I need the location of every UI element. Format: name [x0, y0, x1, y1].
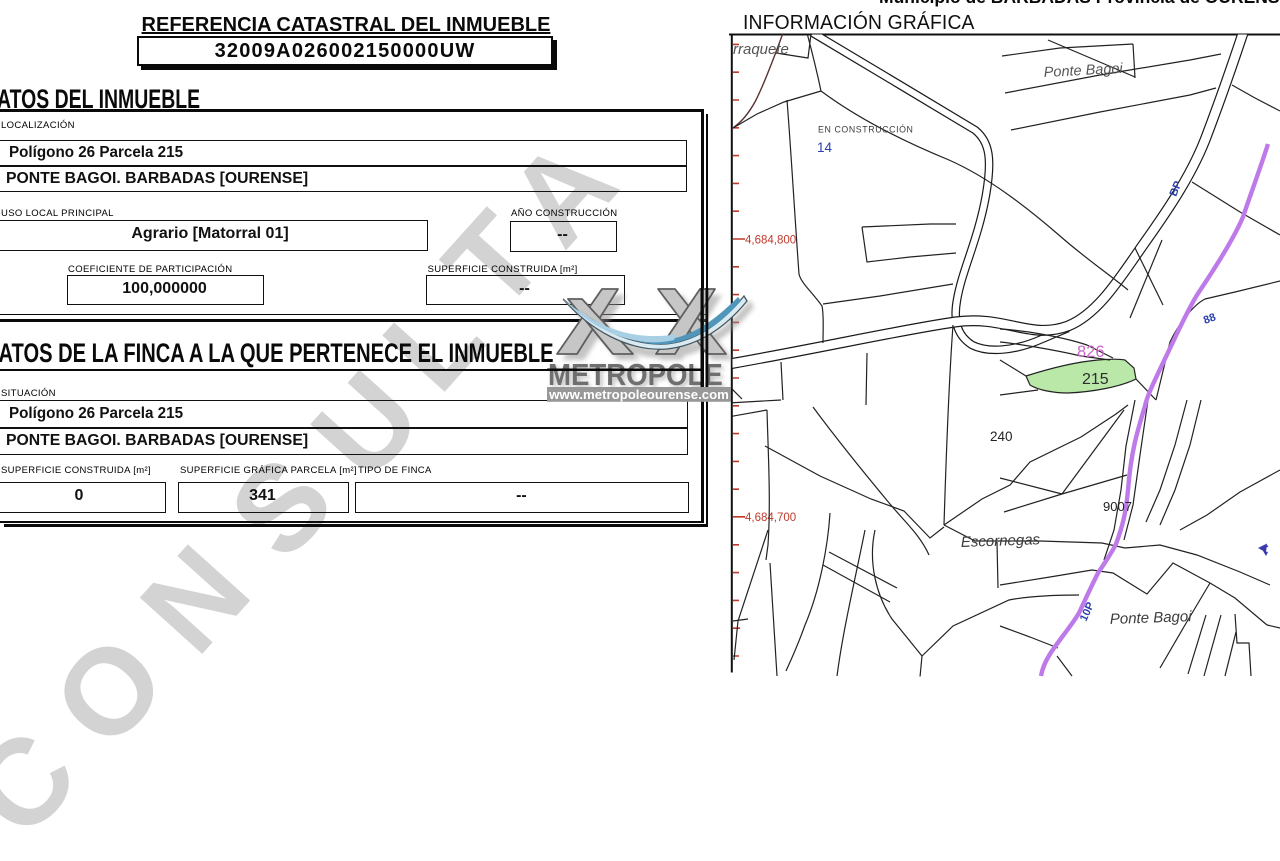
svg-text:www.metropoleourense.com: www.metropoleourense.com [548, 387, 729, 402]
